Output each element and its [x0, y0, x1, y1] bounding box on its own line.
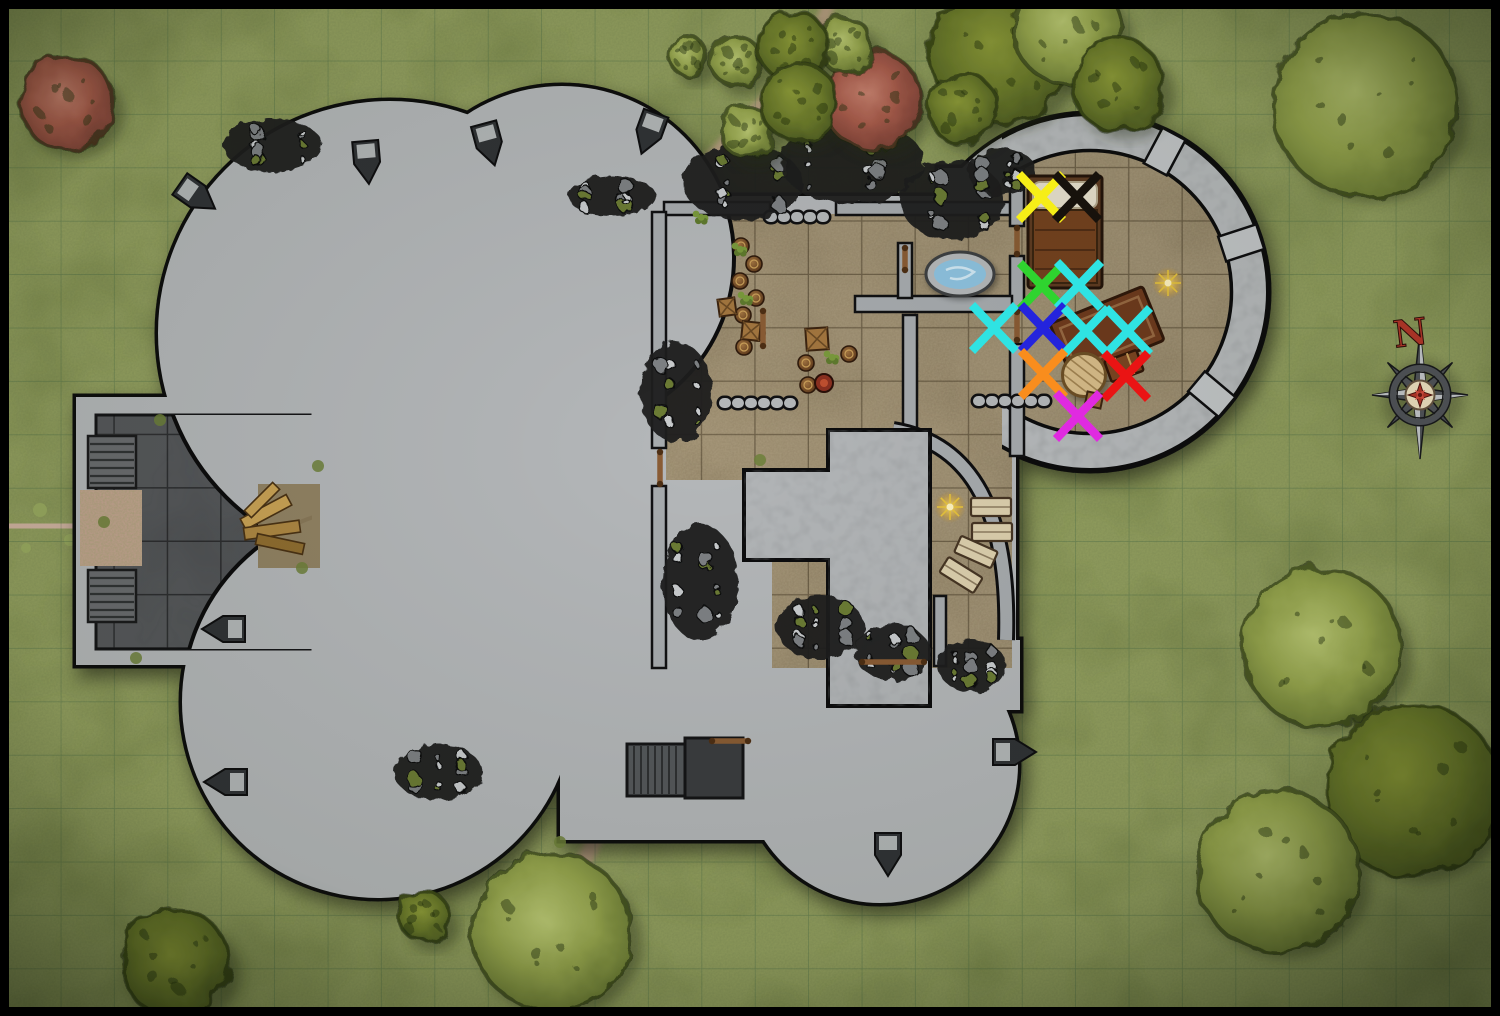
map-canvas: N	[0, 0, 1500, 1016]
vignette	[8, 8, 1492, 1008]
north-label: N	[1391, 309, 1430, 357]
battle-map-screenshot: N	[0, 0, 1500, 1016]
